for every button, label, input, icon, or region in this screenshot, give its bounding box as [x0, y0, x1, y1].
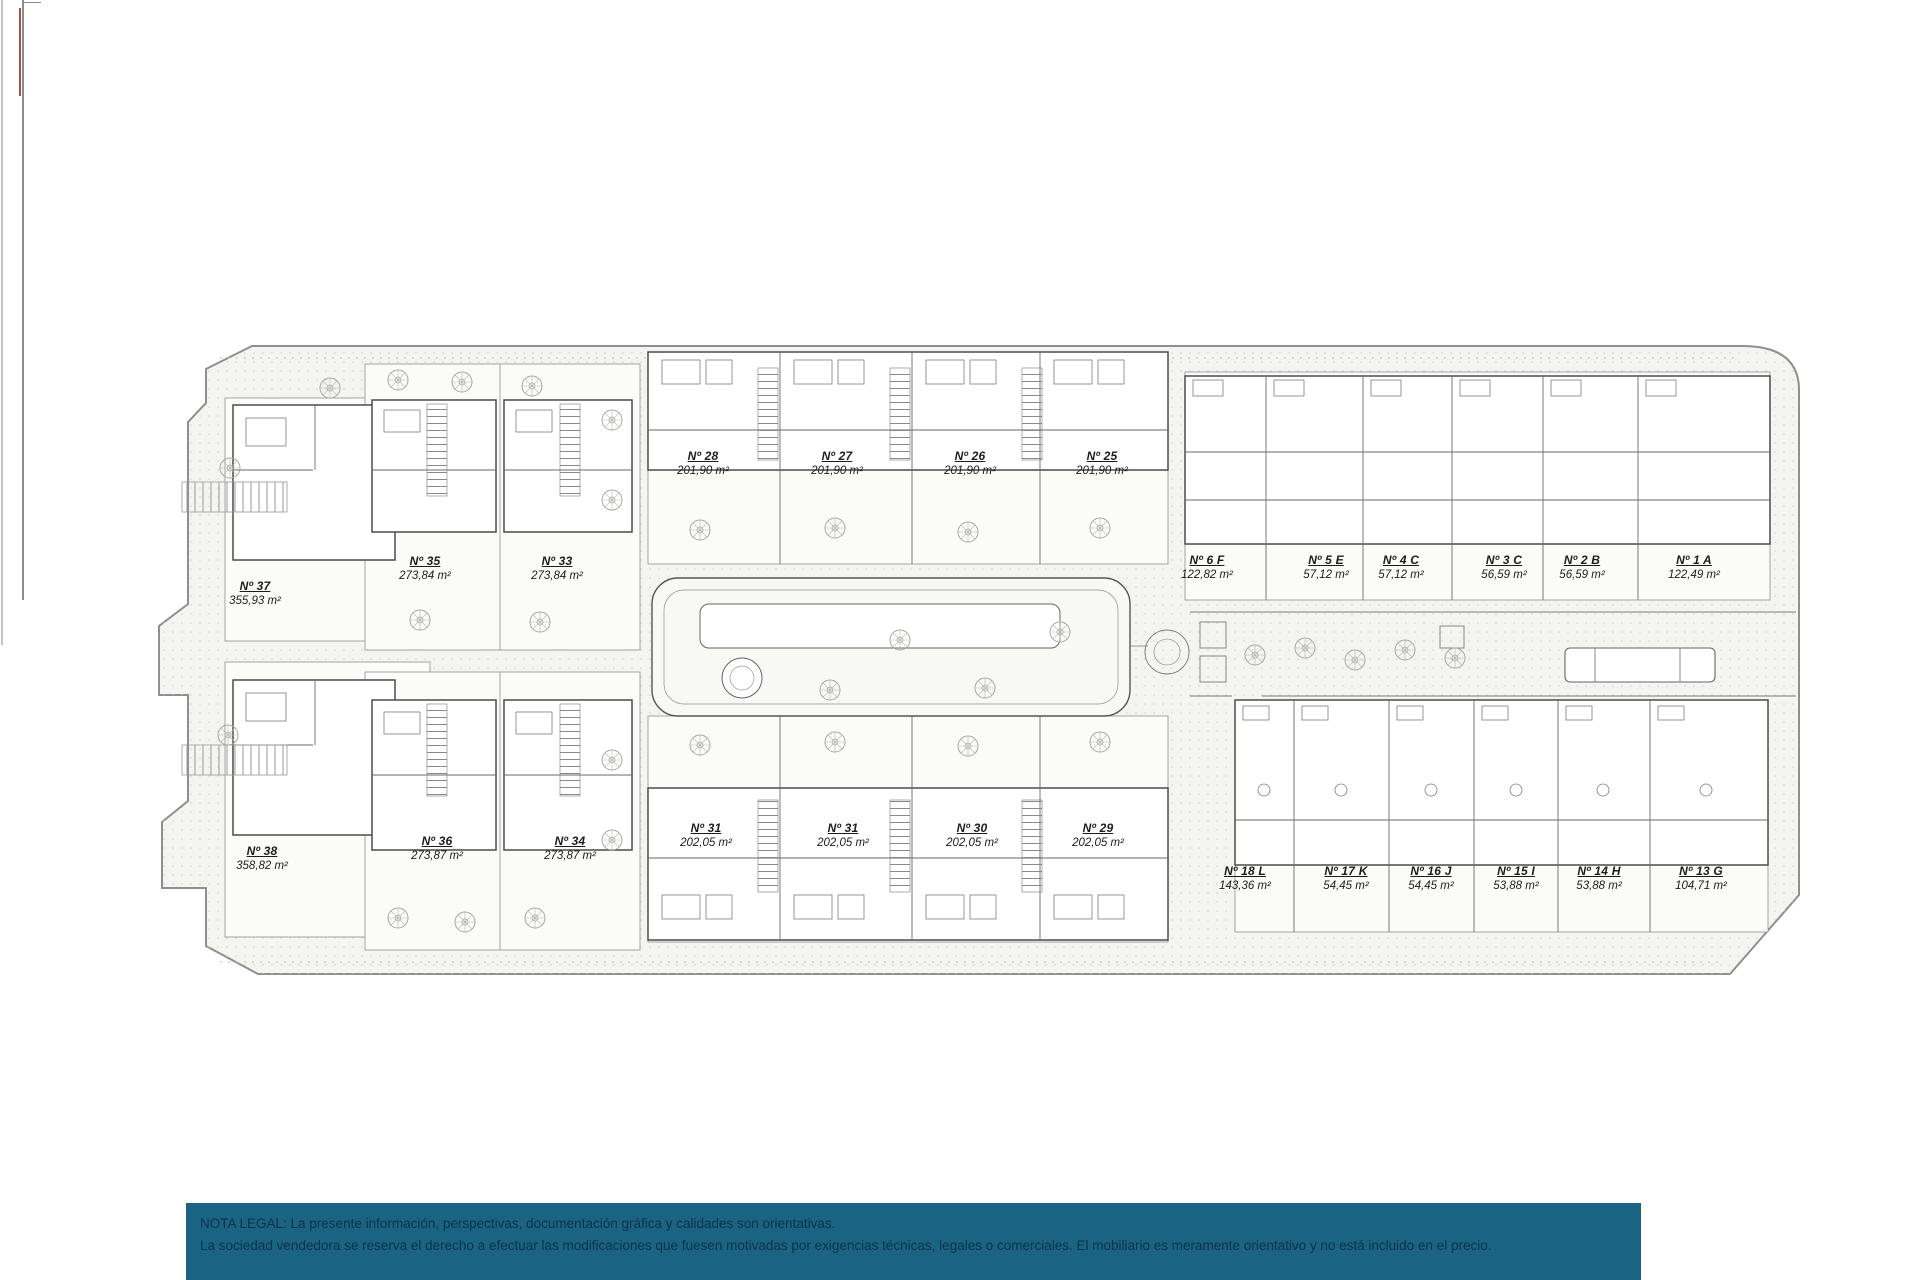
legal-line-2: La sociedad vendedora se reserva el dere…: [200, 1238, 1641, 1254]
legal-note: NOTA LEGAL: La presente información, per…: [186, 1203, 1641, 1280]
spa-circle: [722, 658, 762, 698]
floor-plan: [0, 0, 1920, 1280]
page: Nº 37355,93 m²Nº 35273,84 m²Nº 33273,84 …: [0, 0, 1920, 1280]
legal-line-1: NOTA LEGAL: La presente información, per…: [200, 1216, 1641, 1232]
vehicle: [1565, 648, 1715, 682]
pool: [700, 604, 1060, 648]
